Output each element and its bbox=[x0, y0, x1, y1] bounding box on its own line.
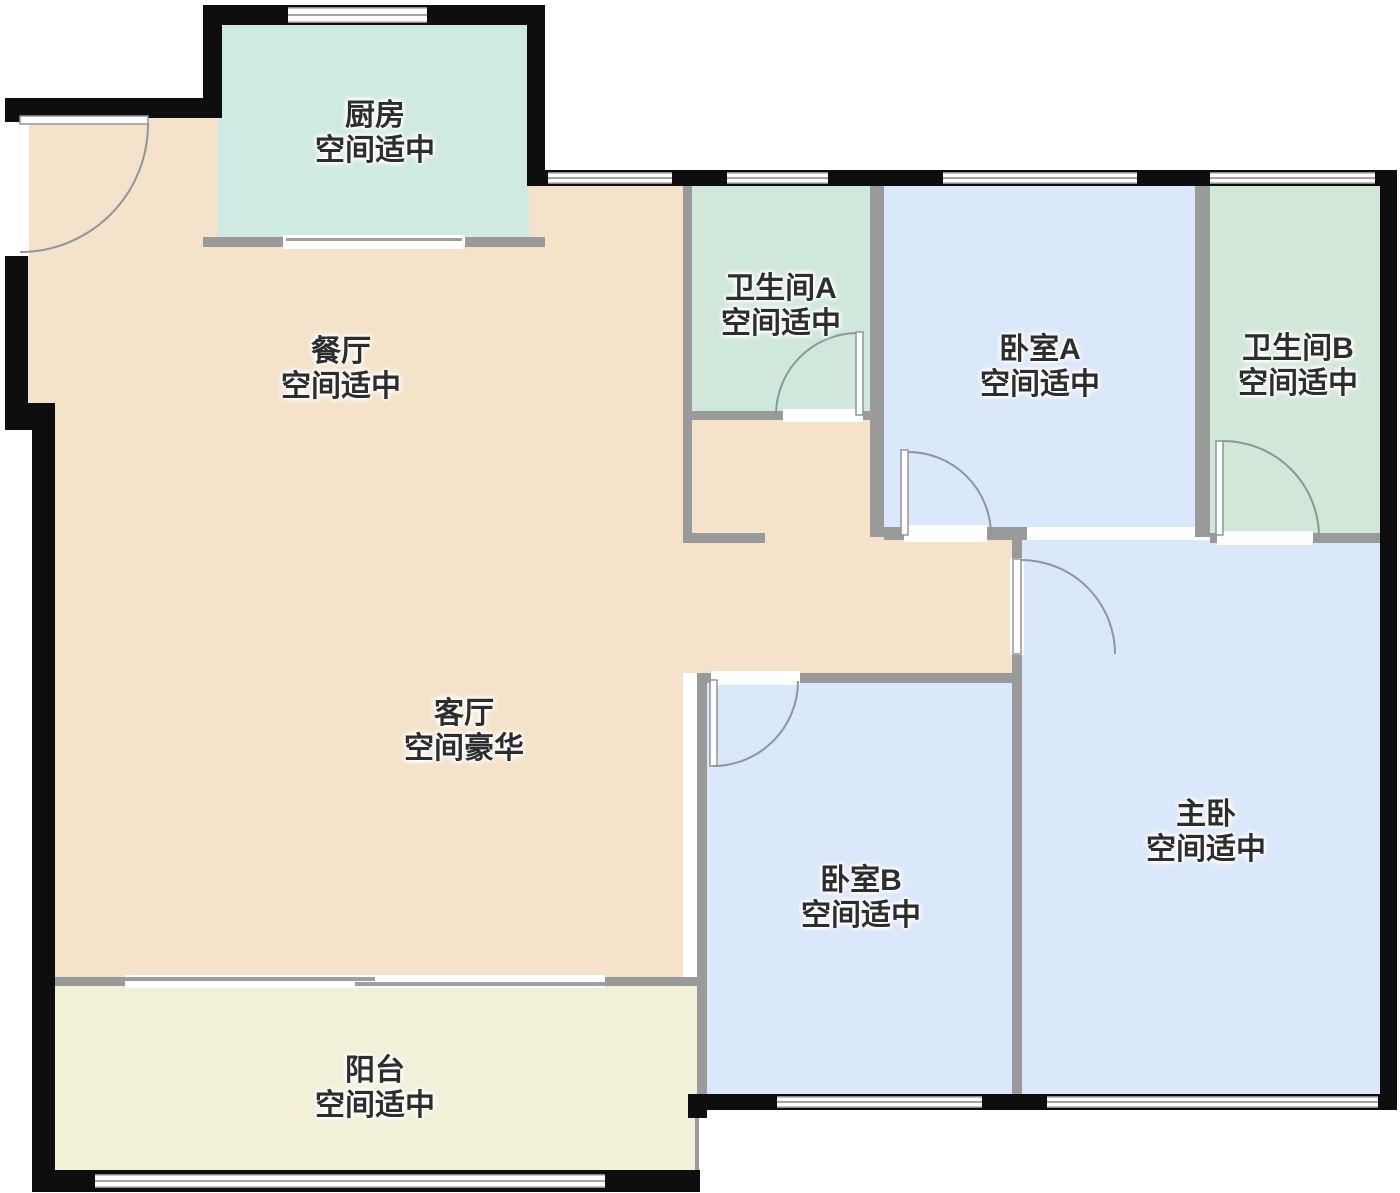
room-label-bathroom-b: 卫生间B 空间适中 bbox=[1238, 331, 1358, 401]
room-size-tag: 空间适中 bbox=[315, 133, 435, 168]
room-name: 厨房 bbox=[315, 98, 435, 133]
floor-plan: 厨房 空间适中 餐厅 空间适中 卫生间A 空间适中 卧室A 空间适中 卫生间B … bbox=[0, 0, 1400, 1193]
room-size-tag: 空间适中 bbox=[1238, 366, 1358, 401]
room-size-tag: 空间适中 bbox=[980, 367, 1100, 402]
room-label-bedroom-b: 卧室B 空间适中 bbox=[801, 863, 921, 933]
room-label-bathroom-a: 卫生间A 空间适中 bbox=[721, 271, 841, 341]
room-name: 客厅 bbox=[404, 696, 524, 731]
bedroom-a-door-icon bbox=[901, 450, 991, 535]
master-door-icon bbox=[1013, 559, 1115, 654]
bathroom-a-door-icon bbox=[776, 332, 863, 415]
bathroom-b-door-icon bbox=[1216, 441, 1319, 537]
room-size-tag: 空间适中 bbox=[801, 898, 921, 933]
room-name: 卧室A bbox=[980, 332, 1100, 367]
room-label-kitchen: 厨房 空间适中 bbox=[315, 98, 435, 168]
room-size-tag: 空间豪华 bbox=[404, 731, 524, 766]
room-name: 卧室B bbox=[801, 863, 921, 898]
room-name: 卫生间B bbox=[1238, 331, 1358, 366]
room-name: 阳台 bbox=[315, 1053, 435, 1088]
room-label-bedroom-a: 卧室A 空间适中 bbox=[980, 332, 1100, 402]
room-size-tag: 空间适中 bbox=[281, 369, 401, 404]
door-arcs-layer bbox=[0, 0, 1400, 1193]
room-label-master: 主卧 空间适中 bbox=[1146, 797, 1266, 867]
room-name: 卫生间A bbox=[721, 271, 841, 306]
room-name: 主卧 bbox=[1146, 797, 1266, 832]
bedroom-b-door-icon bbox=[710, 680, 798, 766]
room-label-balcony: 阳台 空间适中 bbox=[315, 1053, 435, 1123]
entrance-door-icon bbox=[20, 116, 148, 252]
room-size-tag: 空间适中 bbox=[721, 306, 841, 341]
room-name: 餐厅 bbox=[281, 334, 401, 369]
room-size-tag: 空间适中 bbox=[1146, 832, 1266, 867]
room-label-dining: 餐厅 空间适中 bbox=[281, 334, 401, 404]
room-size-tag: 空间适中 bbox=[315, 1088, 435, 1123]
room-label-living: 客厅 空间豪华 bbox=[404, 696, 524, 766]
